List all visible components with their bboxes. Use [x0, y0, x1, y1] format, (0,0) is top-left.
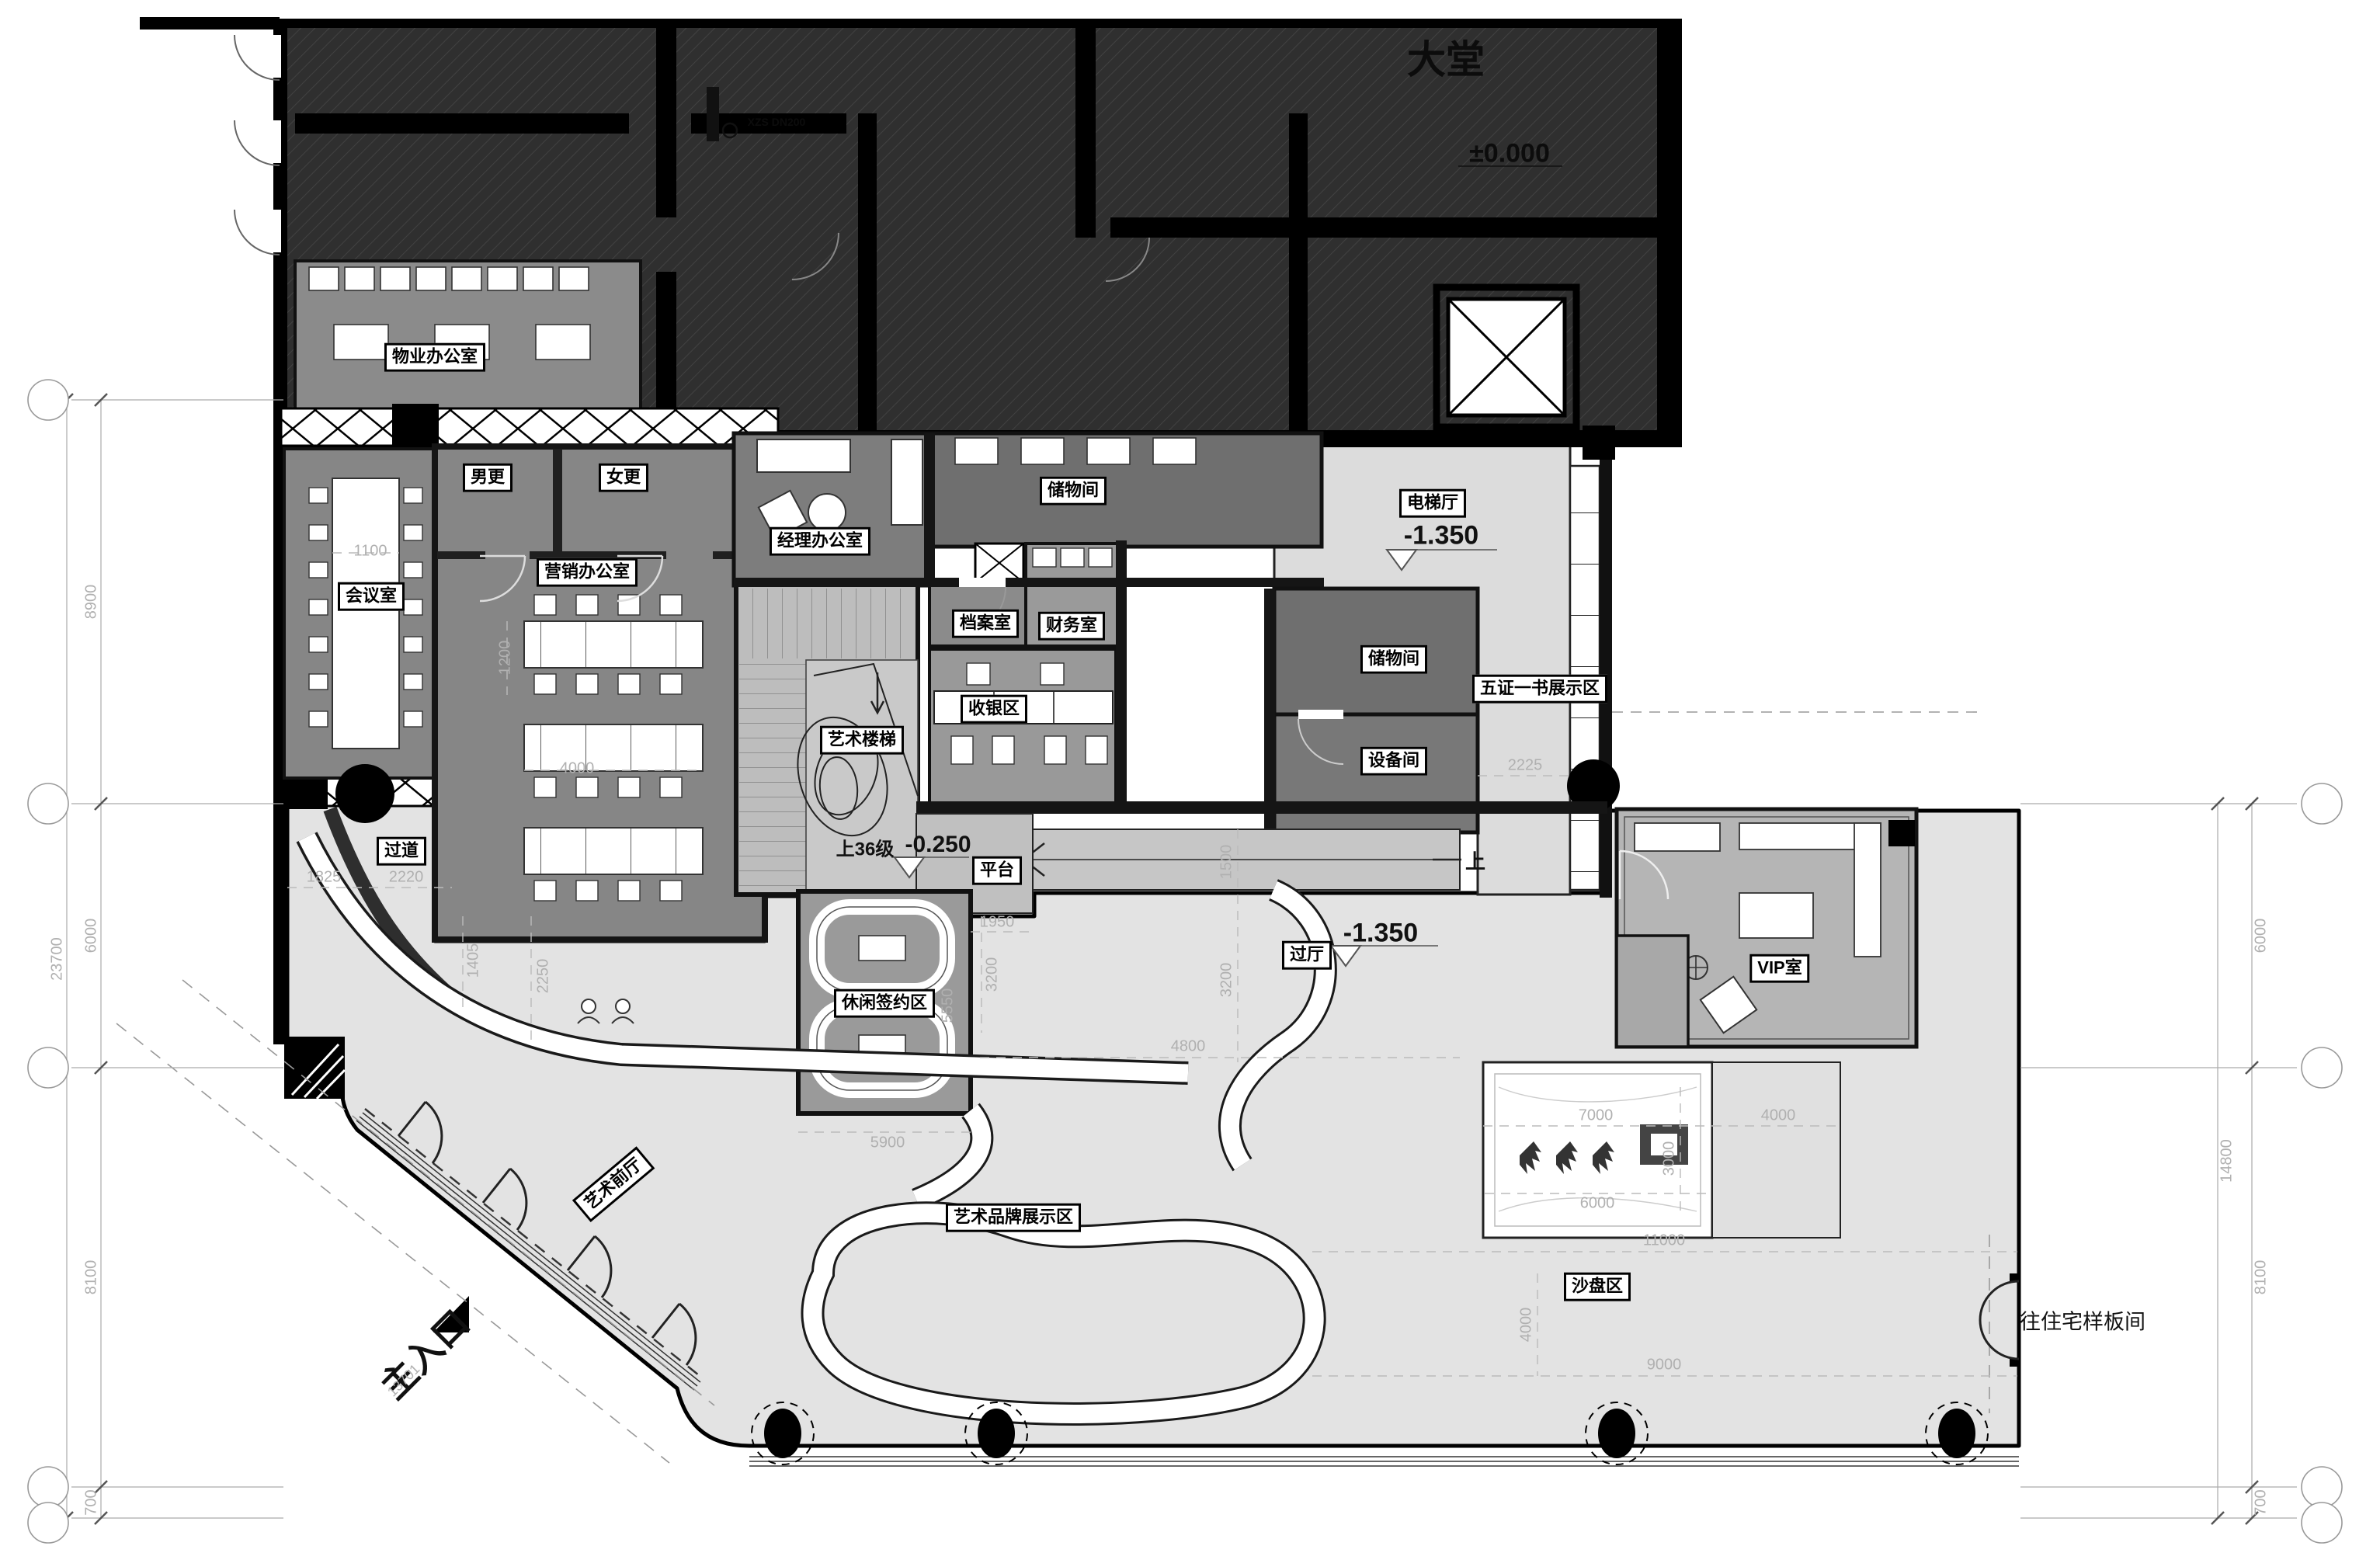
floor-plan-page: 大堂 ±0.000 XZS DN200 物业办公室 男更 女更 会议室 营销办公… [0, 0, 2380, 1546]
room-label-corridor: 过道 [377, 837, 426, 866]
room-label-male-changing: 男更 [463, 464, 512, 492]
room-label-finance: 财务室 [1038, 612, 1105, 641]
room-label-conference: 会议室 [338, 582, 405, 611]
dim-left-8900: 8900 [83, 585, 101, 620]
platform-elevation: -0.250 [905, 832, 971, 858]
lobby-label: 大堂 [1407, 29, 1485, 85]
stair-up-36-note: 上36级 [836, 834, 895, 861]
room-label-storage-1: 储物间 [1040, 477, 1107, 505]
dim-left-6000: 6000 [83, 919, 101, 954]
dim-1200: 1200 [497, 641, 515, 676]
lobby-elevation: ±0.000 [1469, 139, 1550, 169]
dim-1405: 1405 [465, 943, 483, 978]
conference-room [284, 449, 438, 778]
property-office-room [295, 261, 641, 410]
passage-hall-elevation: -1.350 [1343, 919, 1418, 949]
dim-11000: 11000 [1643, 1232, 1685, 1250]
dim-left-8100: 8100 [83, 1260, 101, 1295]
dim-1950: 1950 [980, 914, 1015, 932]
room-label-manager-office: 经理办公室 [770, 527, 870, 556]
dim-9000: 9000 [1647, 1357, 1682, 1374]
storage2-equipment-rooms [1264, 589, 1478, 832]
dim-right-700: 700 [2253, 1489, 2271, 1515]
vip-room [1617, 809, 1916, 1047]
dim-left-23700: 23700 [49, 937, 67, 981]
dim-left-700: 700 [83, 1489, 101, 1515]
dim-4000-desks: 4000 [560, 760, 595, 778]
dim-1100: 1100 [353, 543, 387, 561]
ramp-up-label: 上 [1465, 846, 1485, 875]
room-label-female-changing: 女更 [599, 464, 648, 492]
room-label-vip: VIP室 [1749, 954, 1809, 983]
dim-6000-sand: 6000 [1580, 1195, 1615, 1213]
room-label-cashier: 收银区 [961, 695, 1027, 724]
dim-3200-a: 3200 [984, 957, 1002, 992]
room-label-sand-table: 沙盘区 [1564, 1273, 1631, 1301]
room-label-archive: 档案室 [952, 610, 1019, 638]
room-label-property-office: 物业办公室 [384, 343, 485, 372]
dim-right-8100: 8100 [2253, 1260, 2271, 1295]
marketing-office-room [435, 446, 765, 940]
dim-3200-b: 3200 [1218, 963, 1236, 998]
to-sample-room-label: 往住宅样板间 [2020, 1305, 2145, 1336]
dim-5900: 5900 [870, 1134, 905, 1152]
dim-2225: 2225 [1508, 757, 1543, 775]
room-label-passage-hall: 过厅 [1282, 941, 1332, 970]
manager-office-room [734, 433, 929, 585]
room-label-art-brand-display: 艺术品牌展示区 [946, 1204, 1081, 1232]
dim-1825: 1825 [307, 869, 342, 887]
dim-1500: 1500 [1218, 845, 1236, 880]
room-label-marketing-office: 营销办公室 [537, 558, 638, 587]
pipe-annotation: XZS DN200 [748, 116, 806, 128]
left-boundary [140, 17, 287, 1044]
room-label-platform: 平台 [972, 856, 1022, 885]
dim-4800: 4800 [1171, 1038, 1206, 1056]
dim-right-6000: 6000 [2253, 919, 2271, 954]
dim-4000-v: 4000 [1518, 1308, 1536, 1343]
room-label-art-staircase: 艺术楼梯 [820, 726, 904, 755]
room-label-certificate-display: 五证一书展示区 [1472, 675, 1607, 704]
dim-3000: 3000 [1661, 1141, 1679, 1176]
dim-right-14800: 14800 [2218, 1139, 2236, 1183]
room-label-equipment: 设备间 [1360, 747, 1427, 776]
dim-5550: 5550 [940, 988, 957, 1023]
room-label-storage-2: 储物间 [1360, 645, 1427, 674]
room-label-elevator-hall: 电梯厅 [1399, 489, 1466, 518]
dim-7000: 7000 [1579, 1107, 1614, 1125]
dim-4000-right: 4000 [1761, 1107, 1796, 1125]
dim-2220: 2220 [389, 869, 424, 887]
room-label-lounge-signing: 休闲签约区 [834, 989, 935, 1018]
dim-2250: 2250 [535, 959, 553, 994]
elevator-hall-elevation: -1.350 [1404, 521, 1478, 551]
